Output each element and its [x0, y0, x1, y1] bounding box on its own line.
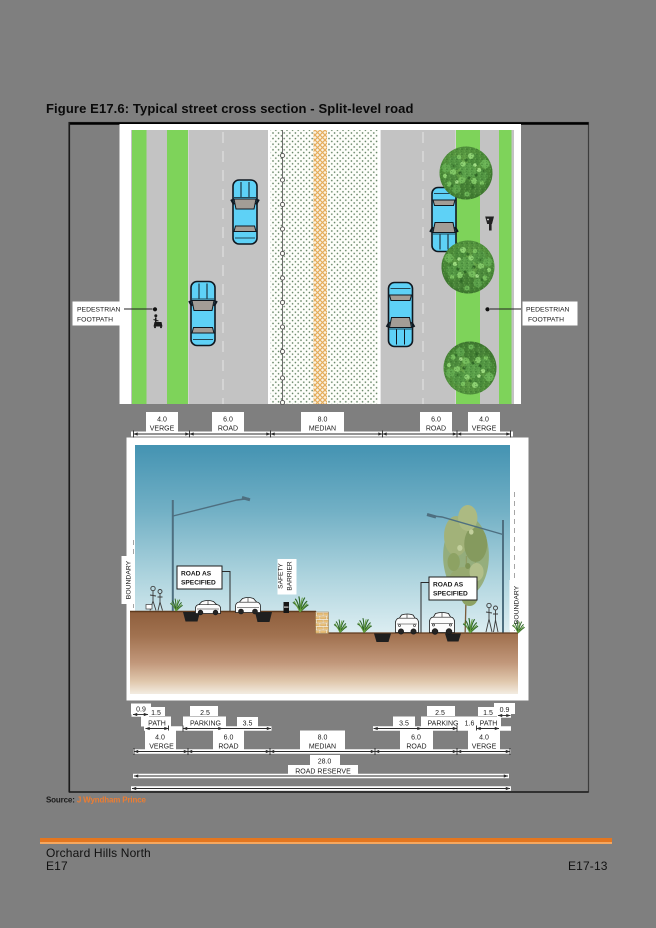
svg-text:PARKING: PARKING [190, 721, 221, 728]
svg-text:PATH: PATH [480, 721, 498, 728]
svg-text:4.0: 4.0 [155, 735, 165, 742]
svg-text:6.0: 6.0 [224, 735, 234, 742]
svg-text:BOUNDARY: BOUNDARY [126, 560, 133, 599]
svg-text:1.6: 1.6 [465, 721, 475, 728]
svg-text:0.9: 0.9 [500, 707, 510, 714]
svg-text:3.5: 3.5 [243, 721, 253, 728]
svg-text:4.0: 4.0 [157, 417, 167, 424]
svg-text:VERGE: VERGE [150, 426, 175, 433]
svg-text:BARRIER: BARRIER [287, 561, 294, 591]
svg-text:ROAD RESERVE: ROAD RESERVE [295, 769, 351, 776]
svg-text:VERGE: VERGE [472, 744, 497, 751]
svg-text:SPECIFIED: SPECIFIED [181, 580, 216, 587]
svg-text:MEDIAN: MEDIAN [309, 426, 336, 433]
svg-text:4.0: 4.0 [479, 417, 489, 424]
svg-text:SPECIFIED: SPECIFIED [433, 591, 468, 598]
svg-text:6.0: 6.0 [223, 417, 233, 424]
svg-text:FOOTPATH: FOOTPATH [77, 317, 113, 324]
svg-text:VERGE: VERGE [472, 426, 497, 433]
svg-text:BOUNDARY: BOUNDARY [514, 585, 521, 624]
svg-text:SAFETY: SAFETY [278, 563, 285, 589]
svg-text:1.5: 1.5 [483, 710, 493, 717]
svg-text:28.0: 28.0 [318, 759, 332, 766]
svg-text:8.0: 8.0 [318, 417, 328, 424]
svg-text:ROAD: ROAD [218, 426, 238, 433]
svg-text:2.5: 2.5 [200, 710, 210, 717]
svg-text:2.5: 2.5 [435, 710, 445, 717]
svg-text:Source: J Wyndham Prince: Source: J Wyndham Prince [46, 796, 147, 805]
svg-text:1.5: 1.5 [151, 710, 161, 717]
svg-text:ROAD: ROAD [218, 744, 238, 751]
svg-text:4.0: 4.0 [479, 735, 489, 742]
svg-text:MEDIAN: MEDIAN [309, 744, 336, 751]
svg-text:PARKING: PARKING [428, 721, 459, 728]
svg-text:ROAD AS: ROAD AS [181, 571, 212, 578]
svg-text:ROAD AS: ROAD AS [433, 582, 464, 589]
svg-text:6.0: 6.0 [411, 735, 421, 742]
svg-text:ROAD: ROAD [406, 744, 426, 751]
svg-text:ROAD: ROAD [426, 426, 446, 433]
svg-text:8.0: 8.0 [318, 735, 328, 742]
svg-text:PATH: PATH [148, 721, 166, 728]
svg-text:FOOTPATH: FOOTPATH [528, 317, 564, 324]
svg-text:VERGE: VERGE [149, 744, 174, 751]
svg-text:PEDESTRIAN: PEDESTRIAN [526, 307, 570, 314]
svg-text:0.9: 0.9 [136, 707, 146, 714]
svg-text:PEDESTRIAN: PEDESTRIAN [77, 307, 121, 314]
svg-text:3.5: 3.5 [399, 721, 409, 728]
svg-text:6.0: 6.0 [431, 417, 441, 424]
